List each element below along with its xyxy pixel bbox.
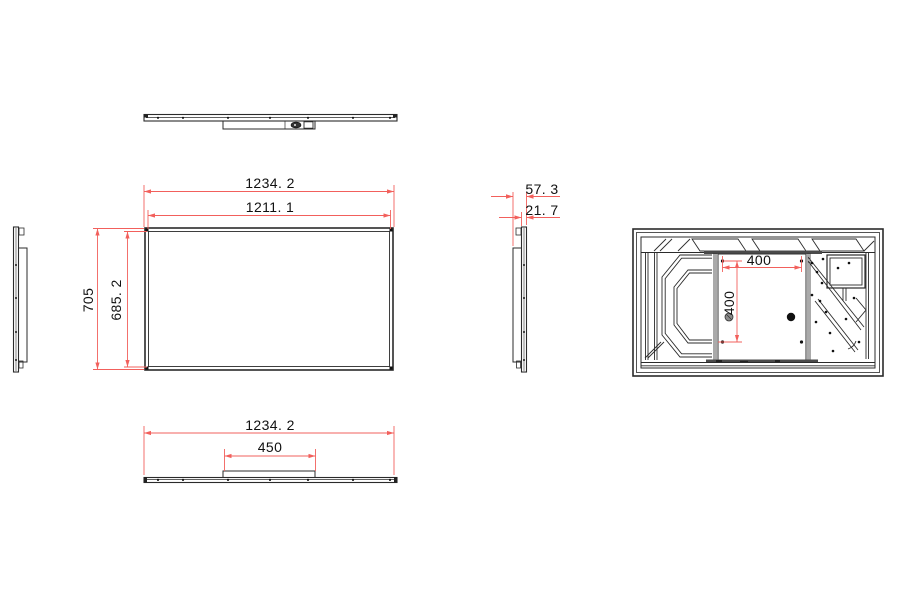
end-cap-icon [394, 477, 397, 483]
corner-marks [146, 229, 393, 370]
drawing-svg [0, 0, 900, 600]
end-cap-icon [144, 477, 147, 483]
screen-bezel [145, 228, 393, 370]
dim-front-height-inner: 685. 2 [109, 279, 123, 320]
dim-front-width-inner: 1211. 1 [246, 200, 294, 214]
power-connector-icon [291, 122, 313, 128]
dim-bottom-stand-width: 450 [258, 440, 283, 454]
controller-box [827, 255, 865, 288]
dim-front-height-outer: 705 [81, 288, 95, 313]
dim-front-width-outer: 1234. 2 [245, 176, 295, 190]
right-side-view [513, 227, 527, 372]
center-hole-icon [787, 313, 795, 321]
bottom-view [144, 471, 397, 483]
top-view [144, 115, 397, 130]
vent-slots [654, 239, 874, 251]
front-view [145, 228, 393, 370]
end-cap-icon [393, 115, 397, 118]
technical-drawing-canvas: 1234. 2 1211. 1 705 685. 2 57. 3 21. 7 4… [0, 0, 900, 600]
left-side-view [14, 227, 28, 372]
stand-mount [223, 471, 315, 478]
screen-active-area [149, 232, 390, 367]
end-cap-icon [144, 115, 148, 118]
dim-side-depth-panel: 21. 7 [525, 203, 558, 217]
dim-side-depth-total: 57. 3 [525, 182, 558, 196]
left-brace-pattern [645, 253, 712, 360]
dim-vesa-height: 400 [722, 291, 736, 316]
dim-vesa-width: 400 [747, 253, 772, 267]
dim-bottom-width: 1234. 2 [245, 418, 295, 432]
